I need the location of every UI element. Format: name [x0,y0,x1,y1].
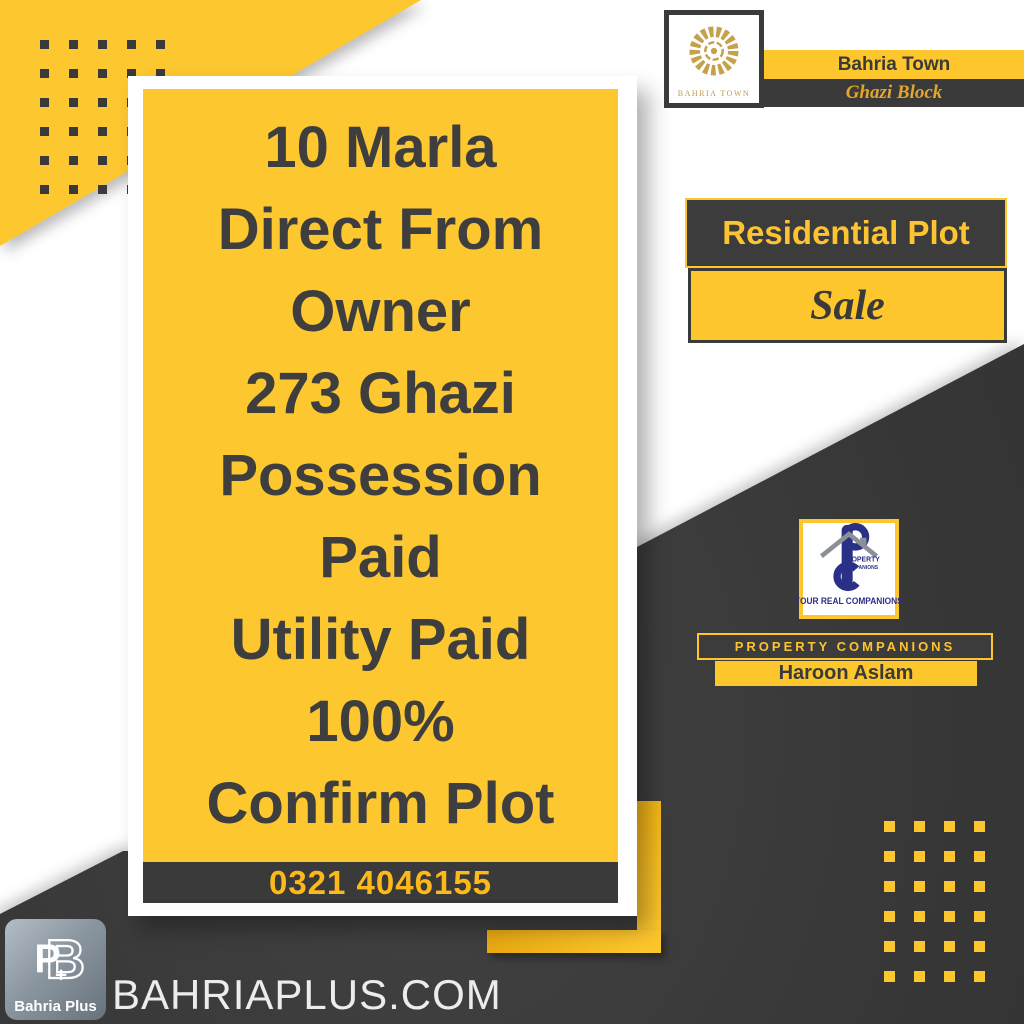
listing-headline-line: Possession [219,435,541,517]
listing-headline-line: Confirm Plot [207,763,555,845]
property-companions-monogram-icon: PROPERTY COMPANIONS [803,523,895,598]
bahria-plus-logo: B P + Bahria Plus [5,919,106,1020]
listing-headline-line: 100% [306,681,454,763]
website-url: BAHRIAPLUS.COM [112,971,502,1019]
bahria-town-logo: BAHRIA TOWN [664,10,764,108]
listing-headline-line: 10 Marla [264,107,496,189]
bahria-town-title-bar: Bahria Town [764,50,1024,79]
property-companions-bar: PROPERTY COMPANIONS [697,633,993,660]
property-companions-tagline: YOUR REAL COMPANIONS [795,596,903,607]
svg-text:+: + [55,964,67,987]
property-companions-logo: PROPERTY COMPANIONS YOUR REAL COMPANIONS [799,519,899,619]
bahria-town-logo-caption: BAHRIA TOWN [678,89,750,98]
sale-label: Sale [810,282,885,330]
listing-headline-line: Direct From [218,189,544,271]
ghazi-block-bar: Ghazi Block [764,79,1024,107]
bahria-plus-caption: Bahria Plus [14,998,97,1015]
listing-card-body: 10 Marla Direct From Owner 273 Ghazi Pos… [143,89,618,862]
svg-text:COMPANIONS: COMPANIONS [844,565,879,571]
flyer: 10 Marla Direct From Owner 273 Ghazi Pos… [0,0,1024,1024]
agent-name: Haroon Aslam [779,662,914,685]
phone-number: 0321 4046155 [269,864,492,902]
listing-headline-line: 273 Ghazi [245,353,516,435]
sale-badge: Sale [688,268,1007,343]
phone-bar: 0321 4046155 [143,862,618,903]
listing-card: 10 Marla Direct From Owner 273 Ghazi Pos… [128,76,637,916]
bahria-plus-monogram-icon: B P + [23,925,89,998]
listing-headline-line: Utility Paid [231,599,531,681]
bahria-town-emblem-icon [683,20,745,87]
listing-headline-line: Paid [319,517,442,599]
bahria-town-title: Bahria Town [838,54,951,76]
agent-name-bar: Haroon Aslam [715,661,977,686]
svg-text:PROPERTY: PROPERTY [842,557,880,564]
residential-plot-label: Residential Plot [722,214,970,252]
corner-accent-horizontal [487,930,661,953]
ghazi-block-label: Ghazi Block [846,82,943,104]
property-companions-label: PROPERTY COMPANIONS [735,639,955,654]
dot-grid-bottom-right [884,821,985,982]
residential-plot-badge: Residential Plot [685,198,1007,268]
listing-headline-line: Owner [290,271,471,353]
